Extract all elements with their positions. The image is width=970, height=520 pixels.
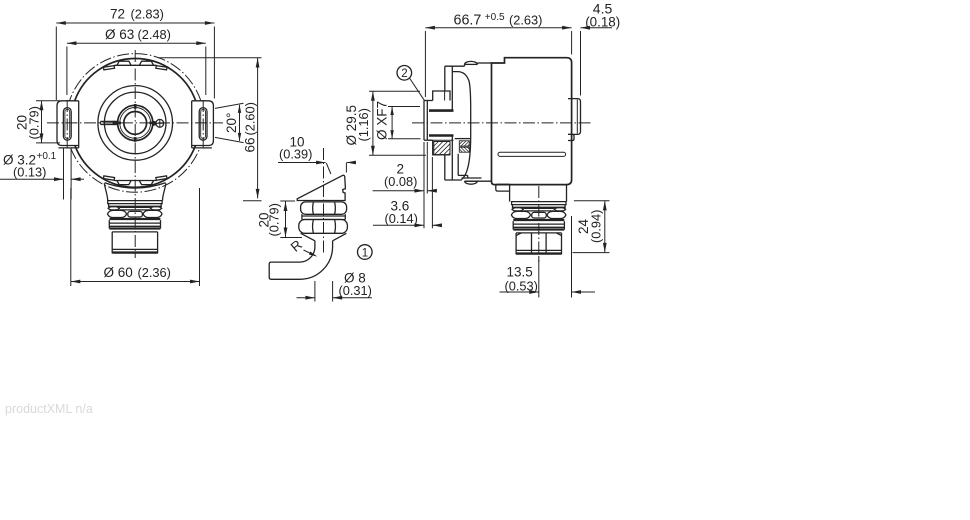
svg-text:(0.08): (0.08) (384, 174, 417, 189)
svg-text:(0.31): (0.31) (339, 283, 372, 298)
svg-text:2: 2 (401, 68, 407, 80)
svg-text:Ø 63: Ø 63 (105, 27, 134, 42)
svg-text:(0.14): (0.14) (385, 211, 418, 226)
svg-text:66.7: 66.7 (454, 13, 482, 29)
svg-text:productXML n/a: productXML n/a (5, 402, 93, 416)
svg-text:(0.18): (0.18) (585, 14, 620, 29)
svg-text:20°: 20° (224, 113, 239, 133)
svg-text:72: 72 (110, 7, 125, 22)
svg-text:(1.16): (1.16) (356, 108, 371, 141)
svg-text:(2.63): (2.63) (509, 12, 542, 27)
svg-text:(0.13): (0.13) (13, 164, 46, 179)
svg-text:1: 1 (362, 247, 368, 259)
svg-text:(2.48): (2.48) (138, 27, 171, 42)
svg-text:(2.60): (2.60) (243, 102, 258, 135)
svg-text:(0.79): (0.79) (27, 106, 42, 139)
svg-text:(0.39): (0.39) (279, 147, 312, 162)
svg-text:Ø XF7: Ø XF7 (375, 101, 390, 140)
svg-text:(2.36): (2.36) (138, 265, 171, 280)
svg-text:Ø 60: Ø 60 (104, 265, 133, 280)
svg-text:13.5: 13.5 (507, 264, 533, 279)
svg-text:(2.83): (2.83) (131, 7, 164, 22)
svg-text:66: 66 (243, 137, 258, 152)
svg-text:(0.79): (0.79) (267, 203, 282, 236)
svg-text:(0.94): (0.94) (589, 210, 604, 243)
svg-text:+0.1: +0.1 (37, 151, 57, 162)
svg-text:(0.53): (0.53) (505, 278, 538, 293)
svg-text:+0.5: +0.5 (485, 12, 505, 23)
